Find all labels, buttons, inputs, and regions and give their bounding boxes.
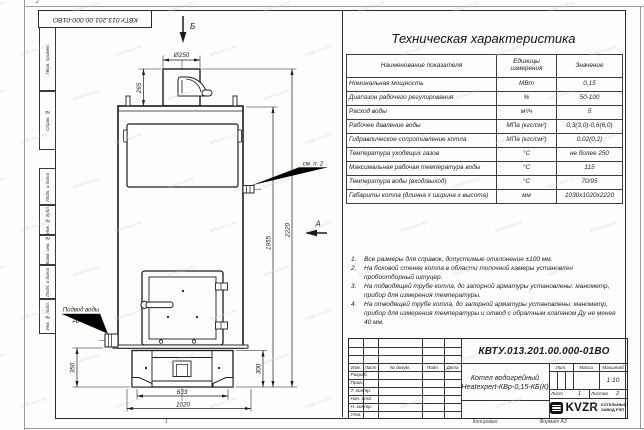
margin-cell-repl-inv: Взам. инв. № <box>39 234 56 266</box>
top-post-right <box>233 96 237 106</box>
rev-col-docnum: № докум. <box>378 363 422 371</box>
margin-cell-ref-number: Справ. № <box>39 90 56 150</box>
margin-cell-label: Справ. № <box>45 110 50 131</box>
sheet-trim-top <box>24 6 644 7</box>
table-cell: Расход воды <box>347 106 497 120</box>
table-row: Гидравлическое сопротивление котлаМПа (к… <box>347 134 623 148</box>
sheet-cell: Лист 1 <box>549 389 589 398</box>
sheet-label: Лист <box>551 391 563 396</box>
table-cell: Диапазон рабочего регулирования <box>347 92 497 106</box>
table-cell: не более 250 <box>557 148 623 162</box>
table-row: Температура воды (вход/выход)°С70/95 <box>347 176 623 190</box>
product-name: Котел водогрейный Heatexpert-КВр-0,15-КБ… <box>461 363 549 400</box>
door-handle <box>146 302 173 308</box>
note-text: На боковой стенке котла в области топочн… <box>364 265 623 283</box>
margin-cell-sign-date-2: Подп. и дата <box>39 264 56 300</box>
table-cell: Температура уходящих газов <box>347 148 497 162</box>
sheets-label: Листов <box>591 391 608 396</box>
sheet-value: 1 <box>578 391 581 397</box>
dim-total-width: 1020 <box>176 401 191 408</box>
product-name-line1: Котел водогрейный <box>471 373 539 382</box>
panel-divider-line <box>342 10 343 417</box>
table-row: Максимальная рабочая температура воды°С1… <box>347 162 623 176</box>
rev-col-list: Лист <box>363 363 378 371</box>
table-cell: мм <box>497 190 557 204</box>
scale-header: Масштаб <box>599 363 627 371</box>
view-arrow-side <box>305 230 317 237</box>
table-cell: °С <box>497 148 557 162</box>
zone-number-top: 2 <box>36 0 39 5</box>
table-cell: °С <box>497 162 557 176</box>
table-cell: Максимальная рабочая температура воды <box>347 162 497 176</box>
watermark-text: kotel-kvzr.kz <box>0 352 6 366</box>
margin-cell-label: Инв. № дубл. <box>45 206 50 234</box>
margin-cell-inv-dup: Инв. № дубл. <box>39 204 56 236</box>
title-block-doc-number: КВТУ.013.201.00.000-01ВО <box>461 339 627 363</box>
rev-col-sign: Подп. <box>422 363 444 371</box>
dim-chimney-height: 265 <box>136 82 143 94</box>
margin-cell-first-application: Перв. примен. <box>39 26 56 92</box>
tech-table-header: Единицы измерения <box>497 55 557 78</box>
tech-table-body: Номинальная мощностьМВт0,15Диапазон рабо… <box>347 78 623 204</box>
tech-table-title: Техническая характеристика <box>345 31 622 46</box>
role-dept-head: Нач. отд. <box>351 395 378 403</box>
dim-chimney-diameter: Ø250 <box>173 52 190 59</box>
note-number: 4. <box>351 301 364 327</box>
scale-value: 1:10 <box>599 371 627 389</box>
tech-table: Наименование показателя Единицы измерени… <box>346 54 623 204</box>
watermark-text: kotel-kvzr.kz <box>0 0 6 14</box>
table-cell: 0,02(0,2) <box>557 134 623 148</box>
table-cell: % <box>497 92 557 106</box>
rev-col-date: Дата <box>444 363 461 371</box>
product-name-line2: Heatexpert-КВр-0,15-КБ(К) <box>461 382 548 391</box>
title-block: Изм. Лист № докум. Подп. Дата Разраб. Пр… <box>348 338 628 419</box>
margin-cell-label: Подп. и дата <box>45 173 50 202</box>
bottom-flange <box>113 345 248 348</box>
role-approved: Утв. <box>351 411 378 419</box>
note-item: 4.На отводящей трубе котла, до запорной … <box>351 301 623 327</box>
margin-cell-label: Перв. примен. <box>45 44 50 75</box>
note-text: На отводящей трубе котла, до запорной ар… <box>364 301 623 327</box>
table-row: Габариты котла (длинна х ширина х высота… <box>347 190 623 204</box>
damper-handle <box>202 90 212 96</box>
tech-table-header-row: Наименование показателя Единицы измерени… <box>347 55 623 78</box>
sampling-fitting <box>243 186 254 194</box>
margin-cell-label: Подп. и дата <box>45 268 50 297</box>
company-logo-cell: KVZR КОТЕЛЬНЫЙ ЗАВОД РЭП <box>549 398 627 418</box>
door-hinge-top <box>216 283 228 290</box>
sheets-value: 2 <box>616 391 619 397</box>
table-cell: Номинальная мощность <box>347 78 497 92</box>
table-cell: 1030х1020х2220 <box>557 190 623 204</box>
boiler-body-outline <box>105 69 254 387</box>
door-hinge-bottom <box>216 322 228 329</box>
watermark-text: kotel-kvzr.kz <box>0 176 6 190</box>
callout-see-note: см. п. 2 <box>303 162 324 168</box>
copied-label: Копировал <box>450 419 520 425</box>
dim-body-height: 1955 <box>265 236 272 251</box>
dim-base-left: 350 <box>70 362 77 373</box>
table-row: Расход водым³/ч5 <box>347 106 623 120</box>
dim-feet-width: 633 <box>177 389 188 396</box>
table-cell: Рабочее давление воды <box>347 120 497 134</box>
note-item: 1.Все размеры для справок, допустимые от… <box>351 256 623 265</box>
note-number: 1. <box>351 256 364 265</box>
format-label: Формат А3 <box>528 419 578 425</box>
zone-number-bottom: 1 <box>165 419 168 425</box>
tech-table-header: Наименование показателя <box>347 55 497 78</box>
table-cell: 0,3(3,0)-0,6(6,0) <box>557 120 623 134</box>
table-cell: Гидравлическое сопротивление котла <box>347 134 497 148</box>
table-row: Температура уходящих газов°Сне более 250 <box>347 148 623 162</box>
table-row: Номинальная мощностьМВт0,15 <box>347 78 623 92</box>
table-cell: 0,15 <box>557 78 623 92</box>
sheet-trim-right <box>640 6 641 429</box>
upper-panel <box>127 124 238 187</box>
callout-water-supply: Подвод воды <box>63 308 100 314</box>
role-developed: Разраб. <box>351 371 378 379</box>
table-cell: МПа (кгс/см²) <box>497 120 557 134</box>
view-label-side: А <box>314 220 320 229</box>
table-cell: МВт <box>497 78 557 92</box>
kvzr-logo-text: KVZR <box>566 402 599 414</box>
table-row: Диапазон рабочего регулирования%50-100 <box>347 92 623 106</box>
rev-col-izm: Изм. <box>349 363 363 371</box>
note-text: На подводящей трубе котла, до запорной а… <box>364 283 623 301</box>
mass-header: Масса <box>573 363 599 371</box>
watermark-text: kotel-kvzr.kz <box>0 88 6 102</box>
note-number: 2. <box>351 265 364 283</box>
notes-list: 1.Все размеры для справок, допустимые от… <box>351 256 623 328</box>
table-row: Рабочее давление водыМПа (кгс/см²)0,3(3,… <box>347 120 623 134</box>
role-checked: Пров. <box>351 379 378 387</box>
margin-cell-label: Взам. инв. № <box>45 236 50 264</box>
sheets-cell: Листов 2 <box>589 389 627 398</box>
table-cell: Габариты котла (длинна х ширина х высота… <box>347 190 497 204</box>
table-cell: 50-100 <box>557 92 623 106</box>
role-tcontrol: Т. контр. <box>351 387 378 395</box>
view-arrow-top <box>180 32 187 43</box>
note-item: 2.На боковой стенке котла в области топо… <box>351 265 623 283</box>
dim-base-right: 300 <box>255 363 262 374</box>
table-cell: м³/ч <box>497 106 557 120</box>
tech-table-header: Значение <box>557 55 623 78</box>
table-cell: 5 <box>557 106 623 120</box>
sheet-trim-left <box>24 0 25 430</box>
note-item: 3.На подводящей трубе котла, до запорной… <box>351 283 623 301</box>
dim-total-height: 2220 <box>284 223 291 239</box>
kvzr-logo-icon <box>550 402 563 414</box>
margin-cell-sign-date-1: Подп. и дата <box>39 168 56 206</box>
table-cell: Температура воды (вход/выход) <box>347 176 497 190</box>
boiler-drawing: Ø250 265 350 300 633 1020 1955 2220 Б <box>55 10 341 418</box>
margin-cell-label: Инв. № подл. <box>45 302 50 331</box>
role-ncontrol: Н. контр. <box>351 403 378 411</box>
watermark-text: kotel-kvzr.kz <box>0 264 6 278</box>
table-cell: 70/95 <box>557 176 623 190</box>
table-cell: °С <box>497 176 557 190</box>
table-cell: МПа (кгс/см²) <box>497 134 557 148</box>
top-post-left <box>126 96 130 106</box>
company-name: КОТЕЛЬНЫЙ ЗАВОД РЭП <box>601 403 626 412</box>
company-name-line2: ЗАВОД РЭП <box>601 408 626 413</box>
note-number: 3. <box>351 283 364 301</box>
margin-cell-inv-orig: Инв. № подл. <box>39 298 56 334</box>
sheet-trim-bottom <box>24 428 644 429</box>
view-label-top: Б <box>190 22 195 31</box>
note-text: Все размеры для справок, допустимые откл… <box>364 256 623 265</box>
table-cell: 115 <box>557 162 623 176</box>
lit-header: Лит. <box>549 363 573 371</box>
